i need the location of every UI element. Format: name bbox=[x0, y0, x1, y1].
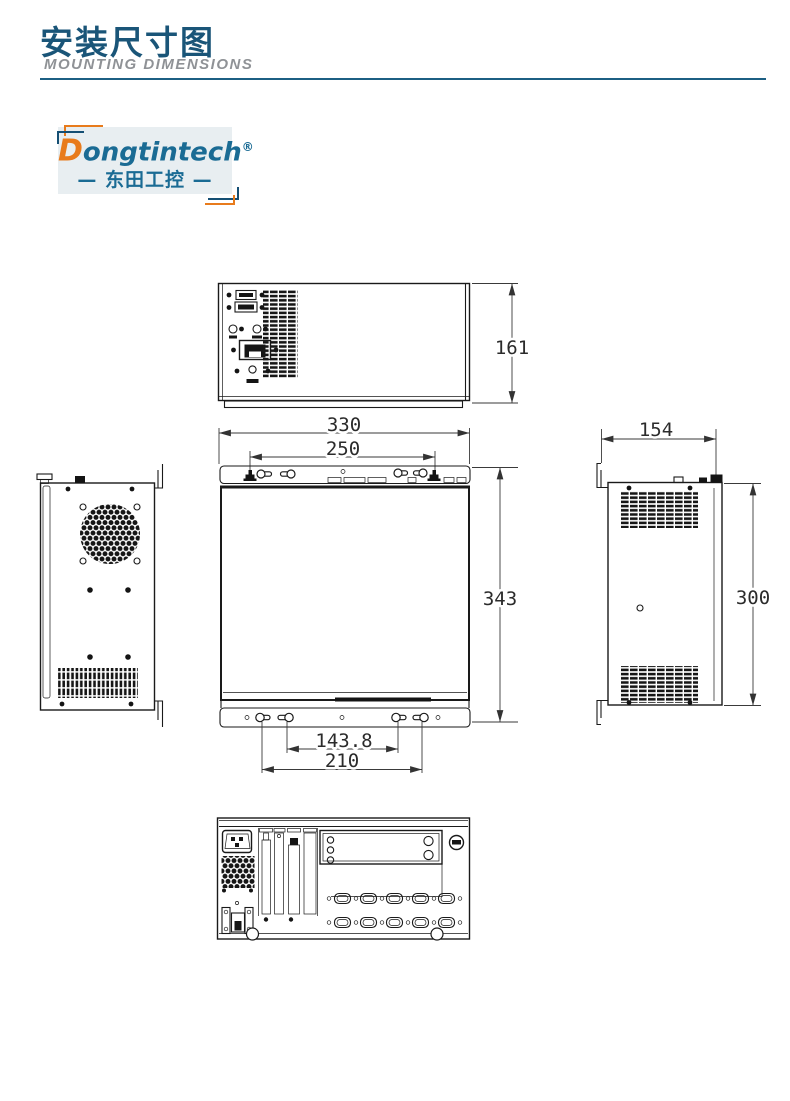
top-mounting-flange bbox=[220, 466, 470, 484]
dimension-overall-depth: 343 bbox=[472, 468, 518, 723]
mount-hole-icon bbox=[431, 928, 443, 940]
dimension-front-height: 161 bbox=[472, 284, 529, 404]
mount-flange-icon bbox=[597, 464, 608, 488]
db9-port-icon bbox=[327, 918, 358, 928]
audio-jacks-icon bbox=[229, 325, 268, 339]
logo-corner-decoration-icon bbox=[205, 195, 235, 205]
db9-port-icon bbox=[439, 918, 462, 928]
mounting-dimensions-page: 安装尺寸图 MOUNTING DIMENSIONS Dongtintech® —… bbox=[0, 0, 790, 1101]
db9-port-icon bbox=[327, 894, 358, 904]
serial-port-row bbox=[327, 918, 462, 928]
usb-ports-icon bbox=[227, 291, 265, 313]
keyhole-slot-icon bbox=[278, 713, 293, 721]
front-panel-view: 161 bbox=[219, 284, 530, 408]
technical-drawing: 161 330 250 bbox=[0, 0, 790, 1101]
side-vent-grille bbox=[620, 491, 698, 528]
logo-corner-decoration-icon bbox=[57, 131, 84, 144]
dim-label-front-height: 161 bbox=[495, 337, 529, 359]
bottom-mounting-flange bbox=[220, 708, 470, 727]
drive-bay-cutout bbox=[320, 831, 442, 897]
dim-label-overall-depth: 343 bbox=[483, 588, 517, 610]
keyhole-slot-icon bbox=[281, 470, 296, 478]
db9-port-icon bbox=[413, 918, 436, 928]
dim-label-inner-hole-span: 143.8 bbox=[315, 730, 372, 752]
dim-label-side-width: 154 bbox=[639, 419, 673, 441]
mount-bracket-icon bbox=[428, 470, 441, 481]
mount-bracket-icon bbox=[244, 470, 257, 481]
left-side-view bbox=[37, 464, 163, 727]
mount-flange-icon bbox=[155, 701, 163, 727]
chassis-body-outline bbox=[221, 487, 469, 701]
mount-flange-icon bbox=[597, 701, 608, 725]
dim-label-side-height: 300 bbox=[736, 587, 770, 609]
db9-port-icon bbox=[413, 894, 436, 904]
side-vent-grille bbox=[620, 666, 698, 703]
dimension-mount-span: 250 bbox=[250, 438, 435, 472]
db9-port-icon bbox=[361, 918, 384, 928]
plan-view: 330 250 bbox=[219, 414, 518, 773]
keyhole-slot-icon bbox=[392, 713, 406, 721]
db9-port-icon bbox=[361, 894, 384, 904]
serial-port-row bbox=[327, 894, 462, 904]
mount-hole-icon bbox=[247, 928, 259, 940]
side-vent-grille bbox=[58, 668, 138, 698]
mount-hole-icon bbox=[637, 605, 643, 611]
power-switch-icon bbox=[222, 901, 253, 933]
db9-port-icon bbox=[387, 918, 410, 928]
dim-label-mount-span: 250 bbox=[326, 438, 360, 460]
front-vent-grille bbox=[263, 290, 298, 378]
round-connector-icon bbox=[450, 836, 464, 850]
db9-port-icon bbox=[387, 894, 410, 904]
keyhole-slot-icon bbox=[414, 469, 428, 477]
dimension-side-height: 300 bbox=[724, 484, 770, 706]
psu-vent-honeycomb bbox=[222, 856, 255, 888]
fan-vent-honeycomb bbox=[80, 504, 140, 564]
rear-panel-view bbox=[218, 818, 470, 940]
keyhole-slot-icon bbox=[394, 469, 408, 477]
keyhole-slot-icon bbox=[257, 470, 272, 478]
keyhole-slot-icon bbox=[256, 713, 270, 721]
dim-label-overall-width: 330 bbox=[327, 414, 361, 436]
dim-label-outer-hole-span: 210 bbox=[325, 750, 359, 772]
dimension-side-width: 154 bbox=[602, 419, 717, 480]
expansion-slots bbox=[259, 828, 318, 922]
mount-flange-icon bbox=[155, 464, 163, 488]
ac-power-inlet-icon bbox=[223, 831, 252, 853]
keyhole-slot-icon bbox=[413, 713, 428, 721]
rear-connector-strip bbox=[328, 478, 466, 483]
right-side-view: 154 300 bbox=[597, 419, 770, 725]
